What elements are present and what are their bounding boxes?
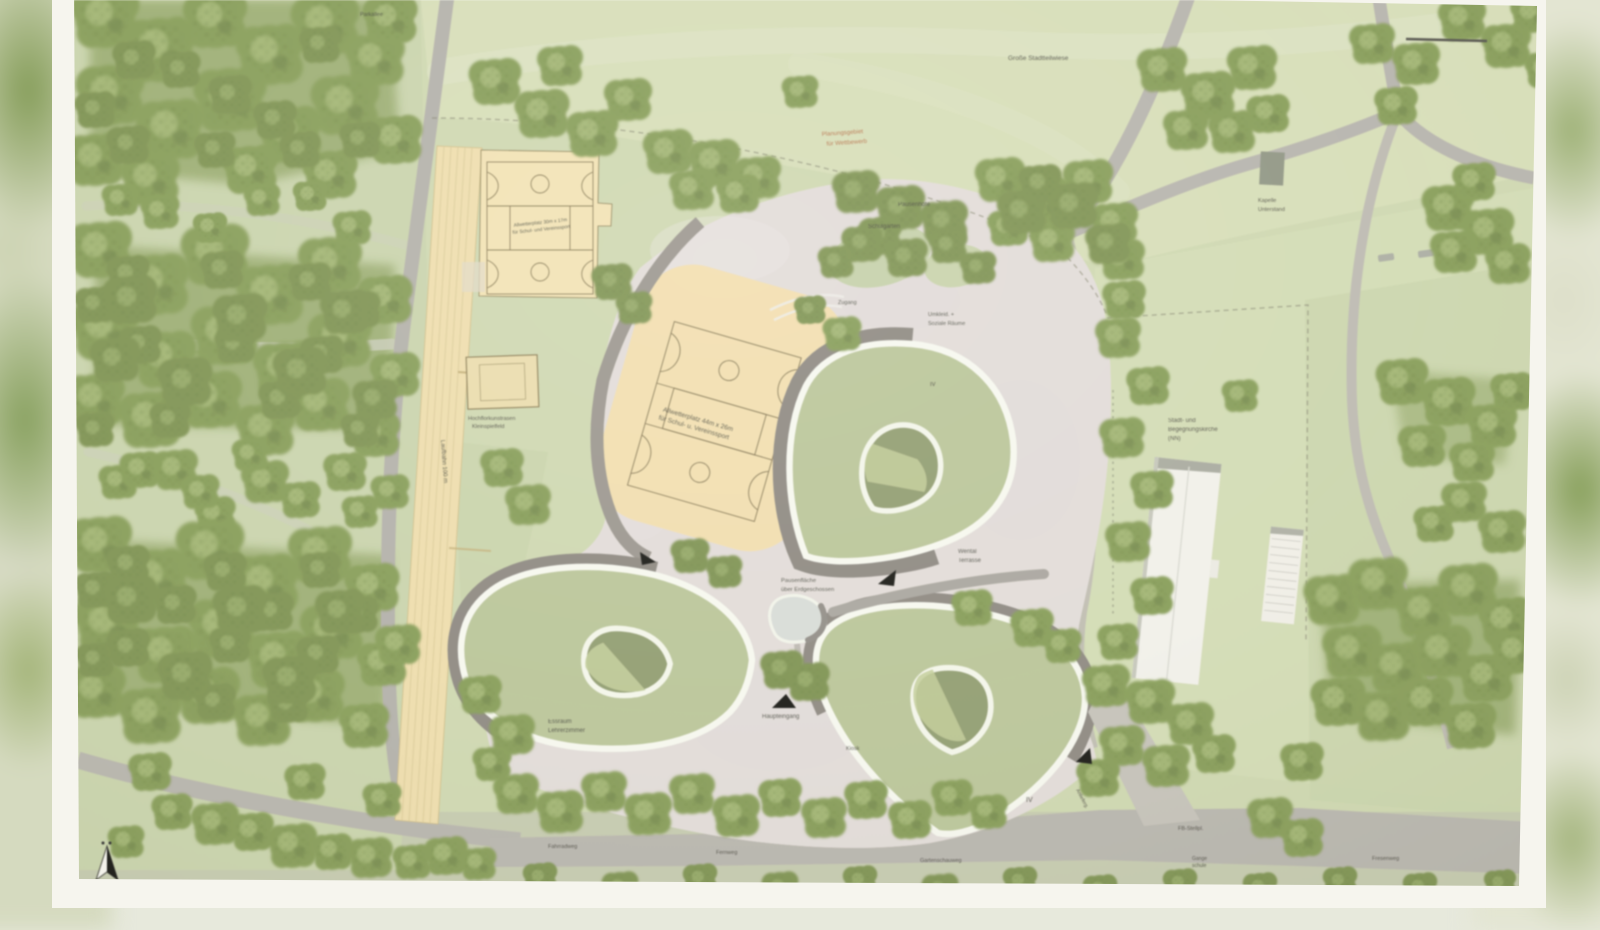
svg-text:IV: IV xyxy=(1026,797,1033,804)
svg-text:Soziale Räume: Soziale Räume xyxy=(928,321,965,327)
svg-text:Stadt- und: Stadt- und xyxy=(1168,418,1196,424)
svg-text:Terrasse: Terrasse xyxy=(958,558,982,564)
svg-text:Fahrradweg: Fahrradweg xyxy=(548,844,577,850)
svg-text:Gange: Gange xyxy=(1192,856,1207,862)
svg-text:Zugang: Zugang xyxy=(838,300,857,306)
svg-text:Fresenweg: Fresenweg xyxy=(1372,856,1399,862)
svg-text:IV: IV xyxy=(930,382,936,388)
svg-text:Parkallee: Parkallee xyxy=(360,12,383,18)
svg-text:Kiosk: Kiosk xyxy=(846,746,860,752)
svg-text:Essraum: Essraum xyxy=(548,719,572,725)
svg-text:Hochflorkunstrasen: Hochflorkunstrasen xyxy=(468,416,515,422)
svg-text:Schulgarten: Schulgarten xyxy=(868,224,900,230)
svg-text:Pausenhöfe: Pausenhöfe xyxy=(898,202,931,208)
svg-text:Haupteingang: Haupteingang xyxy=(762,714,799,720)
svg-text:Begegnungskirche: Begegnungskirche xyxy=(1168,427,1218,433)
svg-text:Gartenschauweg: Gartenschauweg xyxy=(920,858,962,864)
svg-text:Unterstand: Unterstand xyxy=(1258,207,1285,213)
svg-text:Lehrerzimmer: Lehrerzimmer xyxy=(548,728,585,734)
svg-text:Kleinspielfeld: Kleinspielfeld xyxy=(472,424,504,430)
svg-text:FB-Stellpl.: FB-Stellpl. xyxy=(1178,826,1204,832)
svg-text:Kapelle: Kapelle xyxy=(1258,198,1276,204)
svg-text:über Erdgeschossen: über Erdgeschossen xyxy=(781,587,834,593)
svg-text:(NN): (NN) xyxy=(1168,436,1181,442)
svg-text:Umkleid. +: Umkleid. + xyxy=(928,312,954,318)
svg-text:schule: schule xyxy=(1192,863,1207,869)
svg-text:Wental: Wental xyxy=(958,549,977,555)
svg-text:Große Stadtteilwiese: Große Stadtteilwiese xyxy=(1008,55,1069,62)
svg-text:Pausenfläche: Pausenfläche xyxy=(781,578,816,584)
svg-text:Fernweg: Fernweg xyxy=(716,850,737,856)
